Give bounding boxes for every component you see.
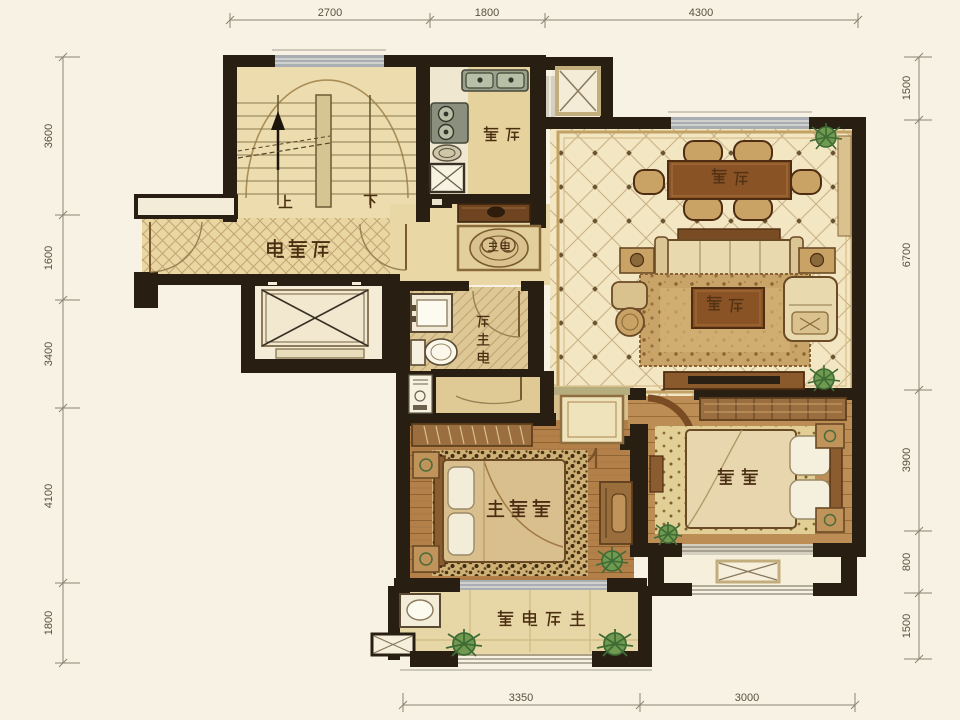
svg-text:1800: 1800 <box>475 7 499 19</box>
svg-text:1800: 1800 <box>43 611 55 635</box>
svg-text:3000: 3000 <box>735 692 759 704</box>
svg-text:1600: 1600 <box>43 246 55 270</box>
svg-text:3900: 3900 <box>901 448 913 472</box>
svg-text:800: 800 <box>901 553 913 571</box>
svg-text:3400: 3400 <box>43 342 55 366</box>
svg-text:3600: 3600 <box>43 124 55 148</box>
svg-text:1500: 1500 <box>901 614 913 638</box>
svg-text:2700: 2700 <box>318 7 342 19</box>
svg-text:1500: 1500 <box>901 76 913 100</box>
svg-text:3350: 3350 <box>509 692 533 704</box>
svg-text:4100: 4100 <box>43 484 55 508</box>
svg-text:6700: 6700 <box>901 243 913 267</box>
svg-text:4300: 4300 <box>689 7 713 19</box>
